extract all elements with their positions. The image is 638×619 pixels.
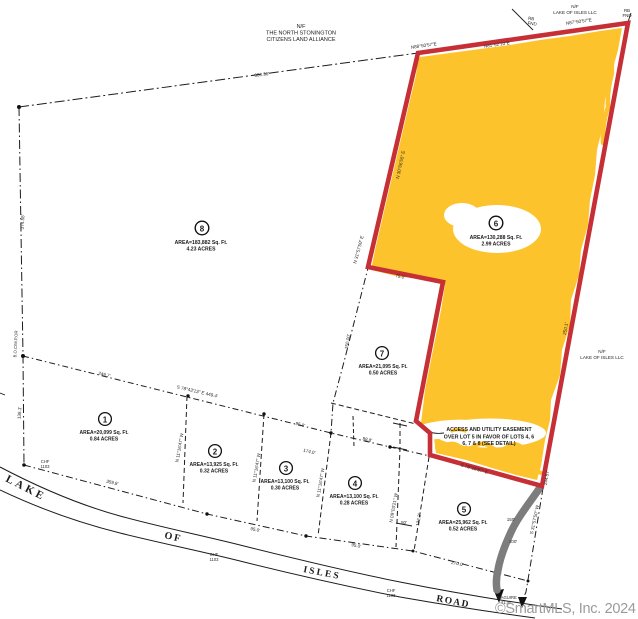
- svg-text:AREA=21,095 Sq. Ft.: AREA=21,095 Sq. Ft.: [358, 364, 408, 370]
- svg-text:8: 8: [200, 225, 205, 234]
- svg-text:1103: 1103: [40, 464, 50, 469]
- svg-text:150': 150': [507, 517, 516, 522]
- svg-text:OVER LOT 5 IN FAVOR OF LOTS 4,: OVER LOT 5 IN FAVOR OF LOTS 4, 6: [444, 435, 535, 441]
- svg-text:CITIZENS LAND ALLIANCE: CITIZENS LAND ALLIANCE: [266, 37, 335, 43]
- svg-text:1103: 1103: [209, 557, 219, 562]
- svg-text:1103: 1103: [386, 593, 396, 598]
- svg-text:LAKE OF ISLES LLC: LAKE OF ISLES LLC: [580, 355, 624, 360]
- svg-text:THE NORTH STONINGTON: THE NORTH STONINGTON: [266, 31, 336, 37]
- svg-text:374.58': 374.58': [20, 214, 26, 229]
- svg-text:0.28 ACRES: 0.28 ACRES: [340, 501, 369, 507]
- svg-text:AREA=130,288 Sq. Ft.: AREA=130,288 Sq. Ft.: [470, 235, 523, 241]
- svg-text:AREA=13,100 Sq. Ft.: AREA=13,100 Sq. Ft.: [329, 494, 379, 500]
- svg-text:N/F: N/F: [571, 4, 579, 9]
- svg-text:0.50 ACRES: 0.50 ACRES: [369, 371, 398, 377]
- svg-text:50': 50': [401, 520, 407, 525]
- svg-text:1: 1: [103, 416, 108, 425]
- svg-text:4.23 ACRES: 4.23 ACRES: [187, 247, 217, 253]
- svg-text:AREA=13,925 Sq. Ft.: AREA=13,925 Sq. Ft.: [189, 462, 239, 468]
- svg-text:0.30 ACRES: 0.30 ACRES: [271, 486, 300, 492]
- svg-text:3: 3: [284, 465, 289, 474]
- svg-text:5: 5: [462, 506, 467, 515]
- svg-text:©SmartMLS, Inc. 2024: ©SmartMLS, Inc. 2024: [495, 601, 636, 617]
- svg-text:AREA=25,962 Sq. Ft.: AREA=25,962 Sq. Ft.: [438, 520, 488, 526]
- svg-text:6: 6: [494, 220, 499, 229]
- svg-text:N/F: N/F: [297, 24, 307, 30]
- svg-text:AREA=13,100 Sq. Ft.: AREA=13,100 Sq. Ft.: [260, 479, 310, 485]
- svg-text:6, 7 & 8 (SEE DETAIL): 6, 7 & 8 (SEE DETAIL): [462, 441, 516, 447]
- svg-text:7: 7: [380, 350, 385, 359]
- svg-text:0.32 ACRES: 0.32 ACRES: [200, 469, 229, 475]
- svg-text:FND: FND: [622, 13, 631, 18]
- svg-text:0.52 ACRES: 0.52 ACRES: [449, 527, 478, 533]
- svg-text:138.1': 138.1': [17, 406, 23, 419]
- svg-text:4: 4: [353, 480, 358, 489]
- svg-text:2: 2: [213, 448, 218, 457]
- svg-text:AREA=183,882 Sq. Ft.: AREA=183,882 Sq. Ft.: [175, 240, 228, 246]
- svg-text:ACCESS AND UTILITY EASEMENT: ACCESS AND UTILITY EASEMENT: [446, 427, 532, 433]
- svg-text:2.99 ACRES: 2.99 ACRES: [482, 242, 512, 248]
- svg-text:AREA=20,099 Sq. Ft.: AREA=20,099 Sq. Ft.: [79, 430, 129, 436]
- svg-text:0.84 ACRES: 0.84 ACRES: [90, 437, 119, 443]
- svg-text:N/F: N/F: [598, 349, 606, 354]
- svg-text:100': 100': [509, 539, 518, 544]
- svg-text:LAKE OF ISLES LLC: LAKE OF ISLES LLC: [553, 10, 597, 15]
